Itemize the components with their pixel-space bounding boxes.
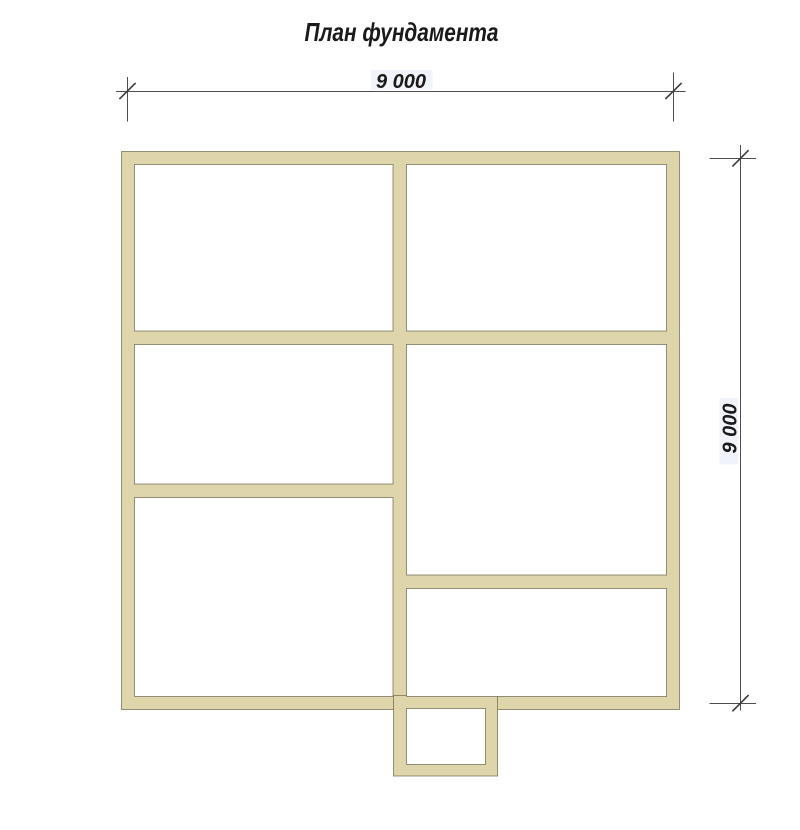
svg-text:9 000: 9 000 xyxy=(376,71,426,93)
svg-text:План фундамента: План фундамента xyxy=(305,17,499,47)
svg-text:9 000: 9 000 xyxy=(720,403,742,453)
